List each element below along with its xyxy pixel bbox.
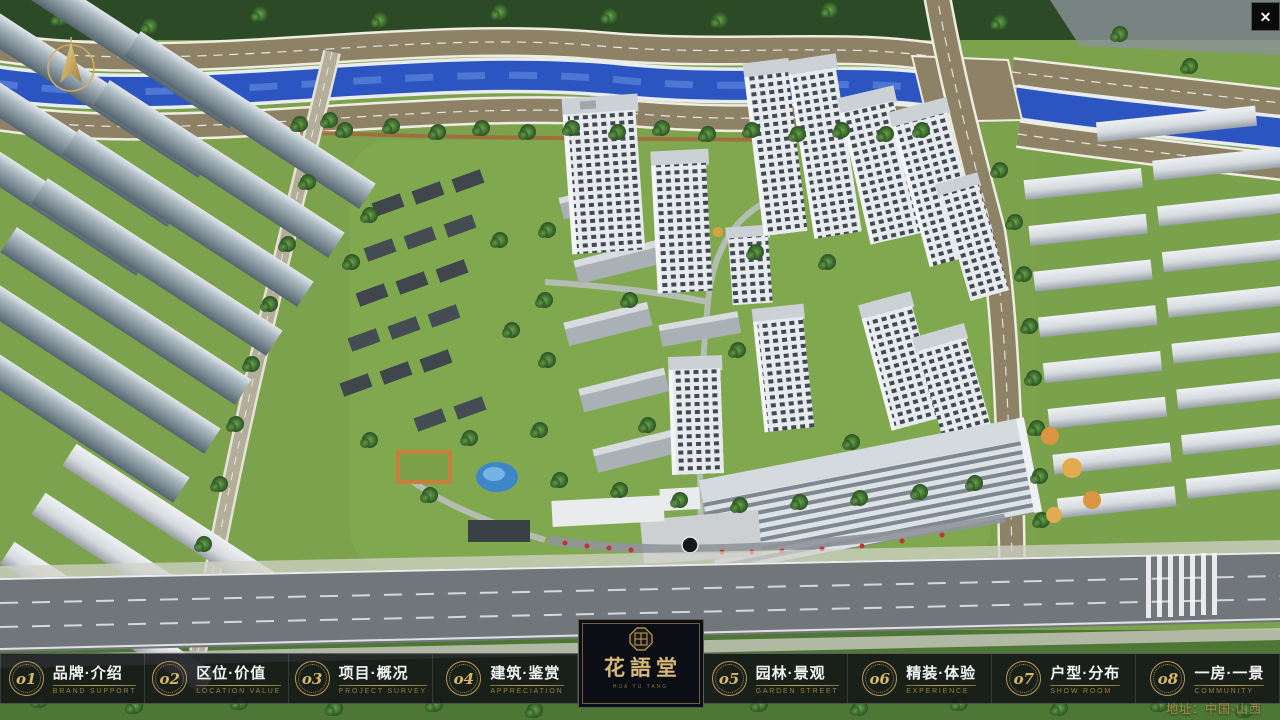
entrance-drop-off: [682, 537, 698, 553]
nav-label-en: APPRECIATION: [490, 688, 563, 695]
nav-number-badge: o7: [1006, 661, 1041, 696]
nav-label-en: LOCATION VALUE: [196, 688, 281, 695]
nav-label-en: COMMUNITY: [1194, 688, 1253, 695]
nav-label-en: SHOW ROOM: [1050, 688, 1112, 695]
nav-label-en: PROJECT SURVEY: [339, 688, 427, 695]
nav-item-floorplan-distribution[interactable]: o7 户型·分布 SHOW ROOM: [992, 654, 1136, 703]
brand-seal-icon: [629, 627, 653, 651]
gold-divider: [490, 685, 563, 686]
nav-number-badge: o6: [862, 661, 897, 696]
nav-number-badge: o4: [446, 661, 481, 696]
project-name: 花語堂: [599, 652, 682, 682]
sales-presentation-screen: ✕ o1 品牌·介绍 BRAND SUPPORT o2 区位·价值 LOCATI…: [0, 0, 1280, 720]
close-button[interactable]: ✕: [1251, 2, 1280, 31]
gold-divider: [53, 685, 137, 686]
project-tagline: HUA YU TANG: [613, 684, 668, 690]
project-logo-panel[interactable]: 花語堂 HUA YU TANG: [578, 619, 704, 708]
gold-divider: [1194, 685, 1264, 686]
nav-label-en: BRAND SUPPORT: [53, 688, 137, 695]
nav-item-room-view[interactable]: o8 一房·一景 COMMUNITY: [1136, 654, 1280, 703]
nav-number-badge: o8: [1150, 661, 1185, 696]
nav-label-zh: 一房·一景: [1194, 662, 1264, 683]
bottom-navbar: o1 品牌·介绍 BRAND SUPPORT o2 区位·价值 LOCATION…: [0, 653, 1280, 704]
nav-item-project-overview[interactable]: o3 项目·概况 PROJECT SURVEY: [289, 654, 433, 703]
nav-label-zh: 精装·体验: [906, 662, 976, 683]
nav-number-badge: o3: [295, 661, 330, 696]
gold-divider: [756, 685, 839, 686]
nav-item-decor-experience[interactable]: o6 精装·体验 EXPERIENCE: [848, 654, 992, 703]
clubhouse: [398, 452, 450, 482]
gold-divider: [1050, 685, 1120, 686]
nav-item-location-value[interactable]: o2 区位·价值 LOCATION VALUE: [145, 654, 289, 703]
close-icon: ✕: [1260, 10, 1272, 24]
nav-label-zh: 建筑·鉴赏: [490, 662, 560, 683]
nav-label-zh: 园林·景观: [756, 662, 826, 683]
nav-label-zh: 户型·分布: [1050, 662, 1120, 683]
gold-landscape-feature: [713, 227, 723, 237]
nav-label-zh: 项目·概况: [339, 662, 409, 683]
gold-divider: [906, 685, 976, 686]
nav-number-badge: o5: [712, 661, 747, 696]
entrance-gate-building: [468, 520, 530, 542]
nav-label-en: GARDEN STREET: [756, 688, 839, 695]
nav-number-badge: o2: [152, 661, 187, 696]
project-address: 地址：中国·山西: [1166, 700, 1262, 717]
site-plan-3d-render: [0, 0, 1280, 720]
nav-item-brand-intro[interactable]: o1 品牌·介绍 BRAND SUPPORT: [0, 654, 145, 703]
nav-label-en: EXPERIENCE: [906, 688, 969, 695]
gold-divider: [196, 685, 281, 686]
nav-label-zh: 区位·价值: [196, 662, 266, 683]
nav-item-garden-landscape[interactable]: o5 园林·景观 GARDEN STREET: [704, 654, 848, 703]
nav-label-zh: 品牌·介绍: [53, 662, 123, 683]
nav-number-badge: o1: [9, 661, 44, 696]
nav-item-architecture-appreciation[interactable]: o4 建筑·鉴赏 APPRECIATION: [433, 654, 577, 703]
gold-divider: [339, 685, 427, 686]
